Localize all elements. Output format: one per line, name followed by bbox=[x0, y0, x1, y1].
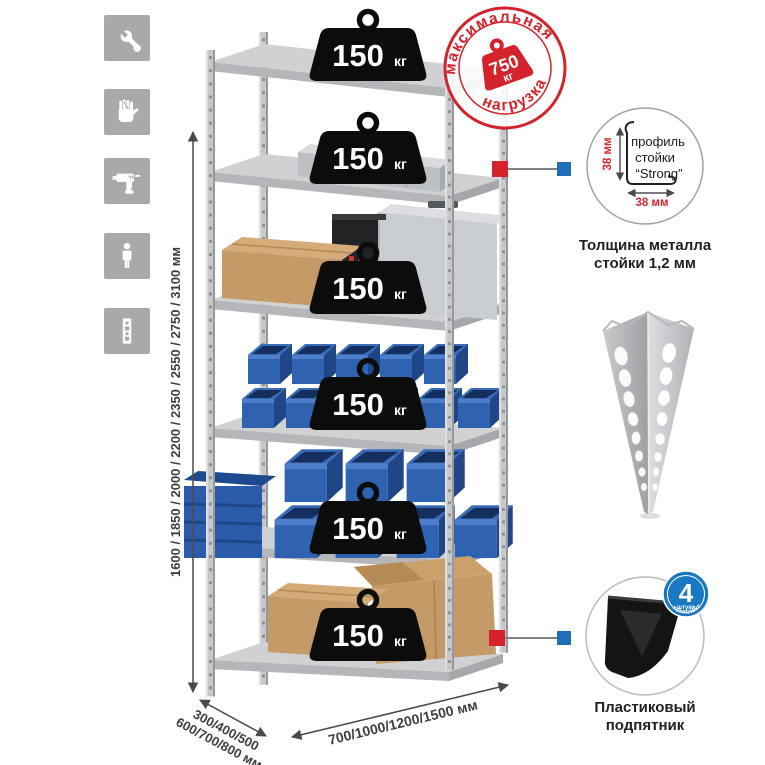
load-badge-1: 150кг bbox=[310, 12, 427, 82]
svg-text:150: 150 bbox=[332, 511, 384, 546]
callout-top bbox=[492, 161, 571, 177]
svg-text:150: 150 bbox=[332, 387, 384, 422]
svg-text:38 мм: 38 мм bbox=[635, 197, 668, 209]
svg-text:150: 150 bbox=[332, 271, 384, 306]
svg-text:150: 150 bbox=[332, 618, 384, 653]
svg-text:кг: кг bbox=[394, 156, 407, 172]
foot-caption-line1: Пластиковый bbox=[594, 699, 695, 716]
profile-detail: 38 мм 38 мм профиль стойки “Strong” bbox=[587, 108, 703, 224]
depth-dimension: 300/400/500 600/700/800 мм bbox=[174, 700, 272, 765]
height-dimension: 1600 / 1850 / 2000 / 2200 / 2350 / 2550 … bbox=[168, 132, 193, 692]
svg-text:700/1000/1200/1500 мм: 700/1000/1200/1500 мм bbox=[327, 696, 480, 747]
callout-blue-marker bbox=[557, 162, 571, 176]
callout-blue-marker bbox=[557, 631, 571, 645]
profile-caption-line2: стойки 1,2 мм bbox=[594, 255, 696, 272]
svg-text:150: 150 bbox=[332, 38, 384, 73]
svg-text:кг: кг bbox=[394, 286, 407, 302]
svg-text:“Strong”: “Strong” bbox=[636, 166, 683, 181]
svg-text:профиль: профиль bbox=[631, 134, 685, 149]
foot-caption-line2: подпятник bbox=[606, 717, 685, 734]
profile-caption-line1: Толщина металла bbox=[579, 237, 712, 254]
load-badge-2: 150кг bbox=[310, 115, 427, 185]
svg-text:4: 4 bbox=[679, 578, 694, 608]
svg-text:кг: кг bbox=[394, 53, 407, 69]
shelving-product-infographic: 150кг 150кг 150кг 150кг 150кг 150кг макс… bbox=[0, 0, 765, 765]
width-dimension: 700/1000/1200/1500 мм bbox=[292, 685, 508, 748]
svg-text:150: 150 bbox=[332, 141, 384, 176]
svg-text:кг: кг bbox=[394, 526, 407, 542]
svg-text:кг: кг bbox=[394, 402, 407, 418]
main-illustration: 150кг 150кг 150кг 150кг 150кг 150кг макс… bbox=[0, 0, 765, 765]
callout-red-marker bbox=[492, 161, 508, 177]
callout-red-marker bbox=[489, 630, 505, 646]
svg-text:1600 / 1850 / 2000 / 2200 / 23: 1600 / 1850 / 2000 / 2200 / 2350 / 2550 … bbox=[168, 247, 183, 577]
svg-text:38 мм: 38 мм bbox=[602, 137, 614, 170]
svg-text:кг: кг bbox=[394, 633, 407, 649]
callout-bottom bbox=[489, 630, 571, 646]
svg-text:стойки: стойки bbox=[635, 150, 675, 165]
angle-post-image bbox=[603, 312, 694, 519]
